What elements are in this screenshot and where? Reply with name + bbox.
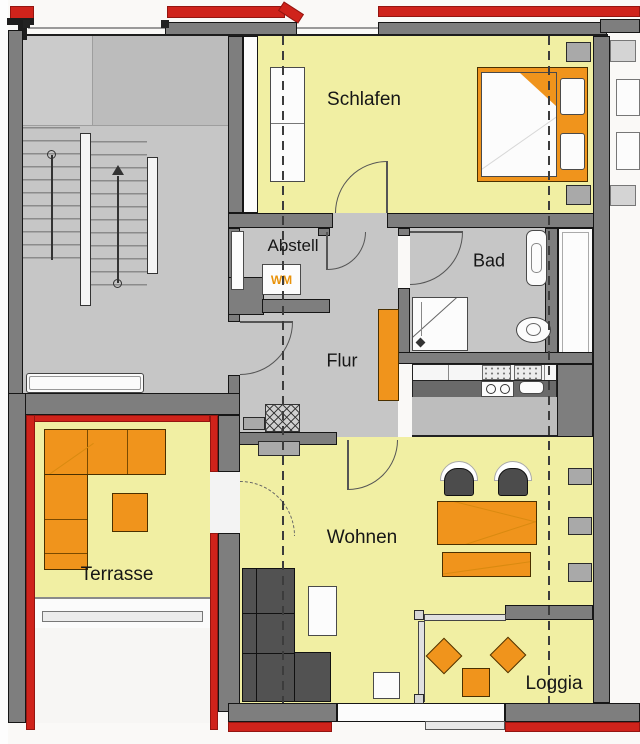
table-crease: [437, 501, 537, 526]
stair-walkline-left-start: [47, 150, 56, 159]
coffee-table: [308, 586, 337, 636]
new-wall-terrasse-left: [26, 415, 35, 730]
loggia-table: [462, 668, 490, 697]
entrance-mat: [26, 373, 144, 393]
floor-plan: WM: [0, 0, 640, 744]
room-label-terrasse: Terrasse: [81, 564, 154, 586]
sofa-dark-vertical: [242, 568, 295, 702]
terrasse-side-table: [112, 493, 148, 532]
south-wall-east: [505, 703, 640, 722]
stair-stringer-left: [80, 133, 91, 306]
stairwell-window-line: [28, 27, 165, 29]
abstell-shelf: [231, 231, 244, 290]
sofa-divider: [87, 430, 88, 475]
schlafen-door-threshold: [333, 213, 387, 228]
landing-divider-v: [92, 36, 93, 126]
dining-chair-right: [498, 468, 528, 496]
section-line-a: [282, 36, 284, 703]
outer-left-wall-lower: [8, 393, 26, 723]
cabinet-divider: [448, 365, 449, 380]
shower-diagonal: [412, 297, 461, 341]
stair-walkline-right-start: [113, 279, 122, 288]
terrasse-sofa-top: [44, 429, 166, 475]
room-label-wohnen: Wohnen: [327, 527, 397, 549]
hall-cabinet: [378, 309, 399, 401]
nightstand-top: [566, 42, 591, 62]
partition-post-top: [414, 610, 424, 620]
terrasse-wohnen-wall-upper: [218, 415, 240, 472]
cooktop: [481, 381, 514, 397]
loggia-glass-partition-h: [424, 614, 506, 621]
room-label-bad: Bad: [473, 251, 505, 272]
room-label-schlafen: Schlafen: [327, 89, 401, 111]
stair-landing-dark: [92, 36, 228, 126]
new-wall-top-mid-slant: [278, 1, 304, 23]
dining-bench: [442, 552, 531, 577]
worktop-left: [482, 365, 511, 380]
shower-drain: [416, 338, 426, 348]
new-wall-south-east: [505, 722, 640, 732]
schlafen-south-wall-right: [387, 213, 607, 228]
burner-right: [500, 384, 510, 394]
neighbor-balcony-4: [610, 185, 636, 206]
room-label-loggia: Loggia: [525, 673, 582, 695]
stairwell-south-wall: [8, 393, 240, 415]
east-window-strip: [558, 228, 593, 360]
new-wall-terrasse-top: [34, 415, 210, 422]
entrance-threshold: [228, 322, 240, 375]
wardrobe: [270, 67, 305, 182]
stairwell-left-wall: [8, 30, 23, 398]
partition-post-bottom: [414, 694, 424, 704]
loggia-glass-partition-v: [418, 621, 425, 702]
sofa-cushion-line: [243, 613, 294, 614]
window-post-mid: [161, 20, 169, 28]
kitchen-sink: [519, 381, 544, 394]
shower-diagonal-2: [421, 302, 422, 336]
sofa-divider: [45, 553, 87, 554]
window-pillar-3: [568, 563, 592, 582]
new-wall-top-right: [378, 6, 640, 17]
window-post-left: [23, 20, 30, 28]
neighbor-balcony-3: [616, 132, 640, 170]
abstell-south-wall: [262, 299, 330, 313]
bathroom-sink-basin: [531, 243, 542, 273]
entrance-mat-inner: [29, 376, 141, 390]
bad-west-wall-upper: [398, 228, 410, 236]
worktop-right: [514, 365, 542, 380]
toilet-bowl: [526, 323, 541, 336]
new-wall-terrasse-right-a: [210, 415, 218, 472]
bad-south-wall: [398, 352, 593, 364]
cabinet-divider: [544, 365, 545, 380]
hall-lowboard: [243, 417, 265, 430]
duvet-crease: [481, 101, 557, 171]
terrasse-wohnen-wall-lower: [218, 533, 240, 712]
outer-right-wall: [593, 36, 610, 703]
sofa-divider: [45, 519, 87, 520]
stair-direction-arrow: [112, 165, 124, 175]
room-label-flur: Flur: [327, 351, 358, 372]
landing-divider-h: [23, 125, 228, 126]
schlafen-window-line: [297, 27, 378, 29]
stair-walkline-left: [51, 155, 53, 260]
stair-stringer-right: [147, 157, 158, 274]
top-right-ledge: [600, 19, 640, 33]
kitchen-east-fill: [557, 364, 593, 437]
kitchen-floor: [412, 397, 557, 437]
sofa-back-line: [256, 569, 257, 701]
terrasse-sofa-left: [44, 474, 88, 570]
schlafen-south-wall-left: [228, 213, 333, 228]
bathroom-sink: [526, 230, 547, 286]
south-window: [337, 703, 505, 722]
bed-mattress: [481, 72, 557, 177]
sofa-dark-chaise: [294, 652, 331, 702]
room-label-abstell: Abstell: [267, 236, 318, 256]
burner-left: [486, 384, 496, 394]
nightstand-bottom: [566, 185, 591, 205]
terrasse-step-bar: [42, 611, 203, 622]
dining-chair-left: [444, 468, 474, 496]
section-line-b: [548, 36, 550, 703]
neighbor-balcony-2: [616, 79, 640, 116]
table-crease: [437, 517, 537, 545]
pillow-left: [560, 78, 585, 115]
duvet-fold: [520, 73, 556, 106]
sofa-cushion-line: [243, 653, 294, 654]
left-gutter: [0, 0, 8, 744]
new-wall-south-west: [228, 722, 332, 732]
toilet: [516, 317, 551, 343]
stairwell-right-wall: [228, 36, 243, 213]
stair-landing-light: [23, 36, 92, 126]
top-wall-baseline: [20, 34, 608, 36]
neighbor-balcony-1: [610, 40, 636, 62]
terrasse-door-opening: [210, 472, 240, 533]
wardrobe-divider: [271, 123, 304, 124]
new-wall-top-mid: [167, 6, 285, 18]
loggia-south-railing: [425, 721, 505, 730]
shaft-strip: [243, 36, 258, 213]
shower: [412, 297, 468, 351]
side-table-small: [373, 672, 400, 699]
window-pillar-2: [568, 517, 592, 535]
new-wall-terrasse-right-b: [210, 533, 218, 730]
sofa-divider: [127, 430, 128, 475]
garden-area: [35, 628, 210, 723]
pillow-right: [560, 133, 585, 170]
stair-walkline-right: [117, 176, 119, 283]
south-wall-west: [228, 703, 337, 722]
east-window-inner-frame: [562, 232, 589, 356]
stair-flight-right: [91, 141, 147, 287]
window-pillar-1: [568, 468, 592, 485]
bench-crease: [442, 560, 531, 575]
dining-table: [437, 501, 537, 545]
sideboard: [258, 441, 300, 456]
